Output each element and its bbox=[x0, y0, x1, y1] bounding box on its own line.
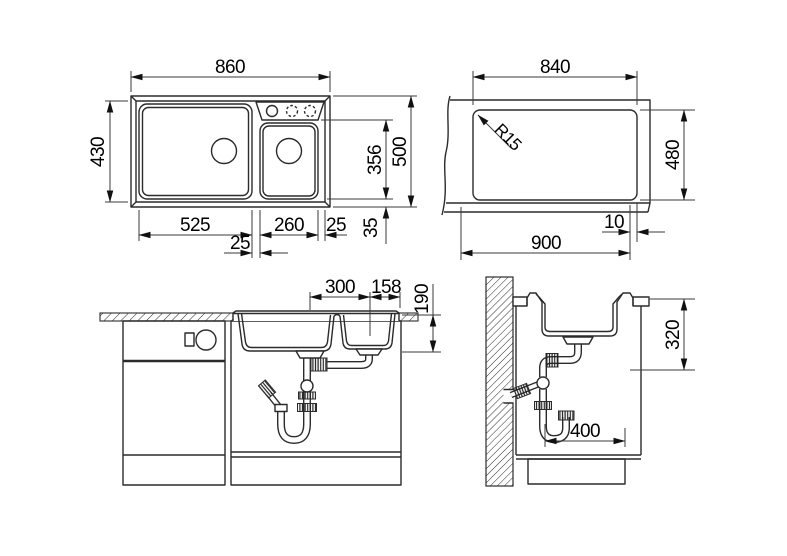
wall-section bbox=[486, 277, 513, 486]
right-drain-flange bbox=[356, 349, 382, 355]
coupling-nut-3 bbox=[298, 404, 317, 412]
dim-260-label: 260 bbox=[274, 215, 304, 236]
cutout-view: R15 840 480 10 900 bbox=[442, 57, 695, 260]
dim-35-label: 35 bbox=[361, 218, 382, 238]
counter-fill bbox=[513, 297, 649, 306]
dim-480-label: 480 bbox=[663, 140, 684, 170]
side-nut-2 bbox=[535, 402, 552, 410]
coupling-nut-1 bbox=[311, 358, 327, 371]
appliance-cabinet bbox=[123, 321, 225, 485]
right-bowl-inner bbox=[263, 126, 315, 196]
dim-r15-label: R15 bbox=[491, 120, 525, 154]
tap-hole-optional-2 bbox=[305, 106, 316, 117]
left-drain bbox=[212, 139, 237, 164]
trap-ring bbox=[275, 405, 287, 412]
appliance-knob bbox=[196, 330, 216, 350]
dim-190-label: 190 bbox=[412, 284, 433, 314]
side-joint-ball bbox=[537, 377, 549, 389]
worktop-break-line bbox=[442, 96, 450, 215]
side-nut-1 bbox=[546, 354, 558, 368]
dim-525-label: 525 bbox=[180, 215, 210, 236]
dim-25-right-label: 25 bbox=[326, 215, 346, 236]
sink-outline bbox=[131, 96, 330, 207]
worktop-section-left bbox=[100, 313, 233, 321]
sink-rim-inner bbox=[136, 101, 325, 202]
sink-cabinet-bottom bbox=[231, 452, 401, 457]
right-bowl bbox=[260, 123, 318, 199]
plan-view: 860 430 356 500 35 525 260 25 25 bbox=[88, 57, 417, 258]
dim-500-label: 500 bbox=[390, 137, 411, 167]
appliance-button bbox=[185, 333, 194, 346]
drawing-canvas: 860 430 356 500 35 525 260 25 25 R15 840 bbox=[0, 0, 787, 556]
dim-840-label: 840 bbox=[540, 57, 570, 78]
dim-10-label: 10 bbox=[604, 212, 624, 233]
side-nut-3 bbox=[559, 411, 575, 420]
front-view: 300 158 190 bbox=[100, 277, 441, 485]
right-drain-pipe bbox=[327, 355, 369, 365]
side-drain-flange bbox=[563, 337, 593, 344]
tap-hole bbox=[267, 106, 278, 117]
sink-rim-fill bbox=[233, 311, 399, 321]
tap-hole-optional-1 bbox=[287, 106, 298, 117]
left-bowl-inner bbox=[143, 108, 249, 196]
dim-356-label: 356 bbox=[365, 145, 386, 175]
dim-320-label: 320 bbox=[663, 320, 684, 350]
dim-860-label: 860 bbox=[215, 57, 245, 78]
cutout-rect bbox=[473, 110, 637, 200]
worktop-outline bbox=[444, 100, 650, 212]
dim-300-label: 300 bbox=[325, 277, 355, 298]
left-drain-flange bbox=[296, 351, 324, 358]
technical-drawing: 860 430 356 500 35 525 260 25 25 R15 840 bbox=[0, 0, 787, 556]
dim-400-label: 400 bbox=[570, 421, 600, 442]
dim-25-divider-label: 25 bbox=[230, 233, 250, 254]
dim-430-label: 430 bbox=[88, 137, 109, 167]
trap-joint-ball bbox=[301, 380, 313, 392]
side-view: 320 400 bbox=[486, 277, 695, 486]
right-drain bbox=[277, 139, 302, 164]
dim-158-label: 158 bbox=[371, 277, 401, 298]
rim-corner-bevels bbox=[131, 96, 330, 207]
left-bowl bbox=[139, 104, 252, 199]
cabinet-plinth bbox=[528, 459, 625, 484]
dim-900-label: 900 bbox=[531, 233, 561, 254]
coupling-nut-2 bbox=[299, 392, 316, 399]
